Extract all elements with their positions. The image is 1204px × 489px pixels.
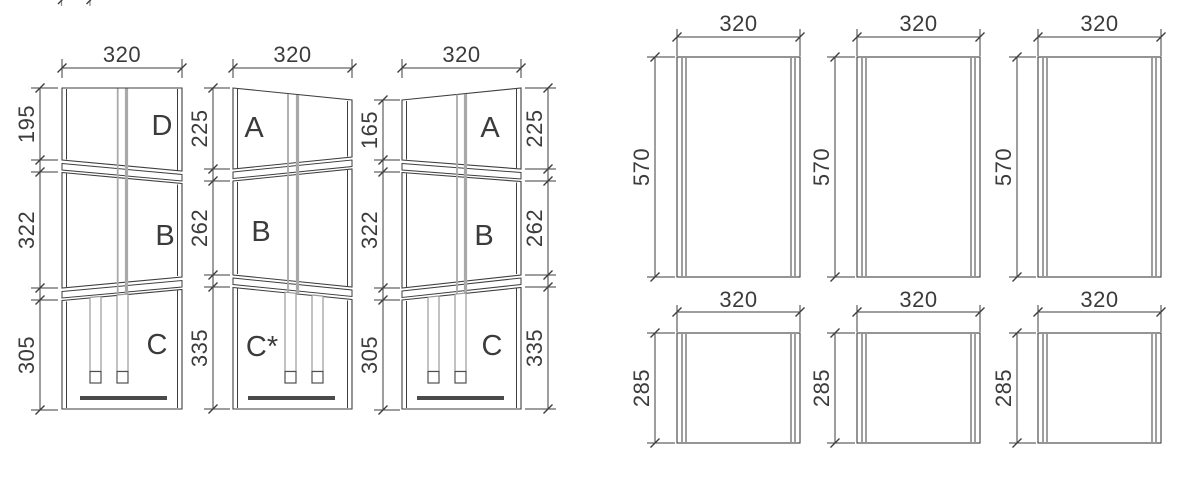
- dim-value: 195: [14, 105, 39, 143]
- panel-view-6: 320 285: [991, 287, 1166, 448]
- dim-chain-right-3: 225 262 335: [522, 84, 556, 414]
- leg-foot: [90, 372, 101, 384]
- panel-label: A: [480, 112, 500, 144]
- panel-view-1: 320 570: [629, 11, 805, 282]
- panel-outline: [1038, 57, 1161, 277]
- dim-value-height: 285: [809, 369, 834, 407]
- dim-chain-left-3: 165 322 305: [357, 96, 400, 415]
- dim-value: 335: [522, 329, 547, 367]
- panel-view-3: 320 570: [991, 11, 1166, 282]
- dim-value: 305: [14, 336, 39, 374]
- dim-chain-left-2: 225 262 335: [187, 84, 230, 414]
- dim-width-top-2: 320: [229, 42, 357, 78]
- dim-value-height: 570: [809, 148, 834, 186]
- panel-outline: [857, 57, 980, 277]
- panel-views: 320 570 320 570 320: [629, 11, 1166, 448]
- panel-label: A: [244, 112, 264, 144]
- remnant-ticks: [58, 0, 94, 4]
- panel-view-2: 320 570: [809, 11, 985, 282]
- unit-drawing-1: D B C: [62, 88, 182, 409]
- panel-label: D: [152, 110, 173, 142]
- panel-view-5: 320 285: [809, 287, 985, 448]
- dim-value: 225: [187, 109, 212, 147]
- dim-chain-left-1: 195 322 305: [14, 84, 58, 415]
- dim-value-width: 320: [273, 42, 311, 67]
- panel-label: B: [474, 220, 493, 252]
- dim-value-width: 320: [442, 42, 480, 67]
- dim-value-height: 285: [991, 369, 1016, 407]
- panel-label: C: [482, 330, 503, 362]
- dim-value-width: 320: [103, 42, 141, 67]
- elevation-column-2: 320 225 262 335 A B: [187, 42, 357, 414]
- dim-value-width: 320: [899, 287, 937, 312]
- remnant-lines: [62, 0, 91, 6]
- dim-value: 262: [187, 209, 212, 247]
- panel-outline: [677, 333, 800, 443]
- dim-value-width: 320: [1080, 287, 1118, 312]
- dim-width-top-3: 320: [398, 42, 526, 78]
- dim-value-width: 320: [1080, 11, 1118, 36]
- panel-outline: [677, 57, 800, 277]
- leg-foot: [312, 372, 323, 384]
- elevation-column-1: 320 195 322 305 D B: [14, 42, 187, 415]
- unit-drawing-3: A B C: [402, 88, 521, 409]
- dim-value-height: 570: [629, 148, 654, 186]
- dim-value: 262: [522, 209, 547, 247]
- furniture-dimension-drawing: 320 195 322 305 D B: [0, 0, 1204, 489]
- dim-value: 305: [357, 336, 382, 374]
- elevation-column-3: 320 165 322 305 225 262 335: [357, 42, 556, 415]
- panel-view-4: 320 285: [629, 287, 805, 448]
- dim-value-width: 320: [899, 11, 937, 36]
- dim-value: 322: [14, 211, 39, 249]
- cropped-drawing-remnant: [58, 0, 94, 6]
- base-rail: [417, 396, 504, 400]
- panel-outline: [857, 333, 980, 443]
- dim-value: 335: [187, 329, 212, 367]
- shelf-panel-middle: [402, 173, 521, 289]
- dim-value: 225: [522, 109, 547, 147]
- panel-label: C*: [246, 331, 278, 363]
- leg-shaft: [312, 295, 323, 372]
- leg-shaft: [285, 292, 296, 371]
- base-rail: [80, 396, 167, 400]
- leg-foot: [455, 372, 466, 384]
- dim-value-height: 285: [629, 369, 654, 407]
- unit-drawing-2: A B C*: [233, 88, 352, 409]
- leg-foot: [117, 372, 128, 384]
- base-rail: [248, 396, 335, 400]
- dim-value-height: 570: [991, 148, 1016, 186]
- panel-outline: [1038, 333, 1161, 443]
- dim-value-width: 320: [719, 11, 757, 36]
- panel-label: C: [147, 329, 168, 361]
- dim-value: 165: [357, 111, 382, 149]
- dim-width-top-1: 320: [58, 42, 187, 78]
- dim-value-width: 320: [719, 287, 757, 312]
- leg-shaft: [455, 293, 466, 372]
- leg-shaft: [90, 296, 101, 371]
- panel-label: B: [155, 220, 174, 252]
- dim-value: 322: [357, 211, 382, 249]
- leg-shaft: [428, 296, 439, 372]
- leg-foot: [428, 372, 439, 384]
- technical-drawing-canvas: 320 195 322 305 D B: [0, 0, 1204, 489]
- leg-shaft: [117, 294, 128, 372]
- shelf-panel-top: [402, 88, 521, 169]
- panel-label: B: [251, 216, 270, 248]
- leg-foot: [285, 372, 296, 384]
